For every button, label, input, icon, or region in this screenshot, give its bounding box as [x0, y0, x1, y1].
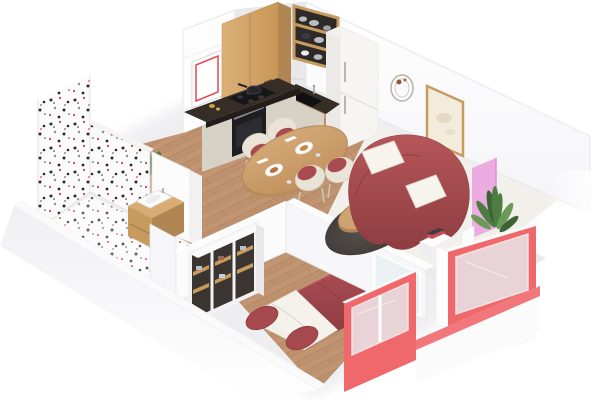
sofa	[348, 135, 469, 250]
floor-plan-render	[0, 0, 600, 400]
isometric-apartment	[0, 0, 600, 400]
right-fade	[545, 170, 600, 400]
